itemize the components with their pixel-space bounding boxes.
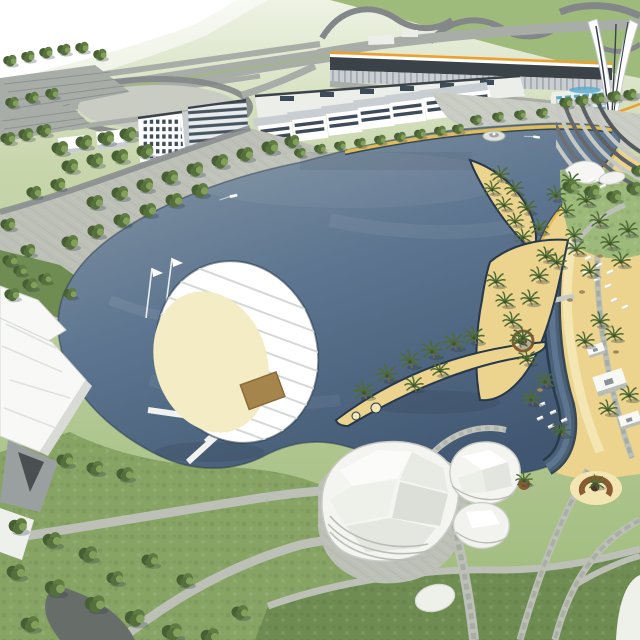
palm-tree	[518, 199, 538, 216]
palm-tree	[487, 272, 507, 289]
palm-tree	[522, 390, 542, 407]
tree	[562, 180, 580, 194]
palm-tree	[510, 332, 530, 349]
shaded-plaza	[45, 585, 135, 640]
palm-tree	[562, 172, 582, 189]
sail-island	[130, 240, 345, 464]
palm-tree	[566, 227, 584, 242]
beach-pavilion	[592, 368, 628, 397]
palm-tree	[377, 365, 399, 384]
tree	[45, 88, 61, 101]
crescent-south	[336, 342, 546, 426]
tree	[212, 154, 232, 170]
tree	[120, 127, 140, 143]
south-grass-strip	[255, 548, 640, 640]
tree	[284, 135, 302, 149]
palm-tree	[505, 180, 525, 197]
tree	[394, 132, 408, 143]
palm-tree	[530, 267, 550, 284]
shade-umbrellas	[537, 250, 619, 392]
palm-tree	[484, 181, 502, 196]
tree	[21, 51, 37, 64]
tree	[334, 141, 348, 152]
building-reflection	[300, 152, 472, 170]
palm-tree	[400, 351, 422, 370]
lawn-patch	[108, 213, 228, 268]
tree	[112, 149, 132, 165]
tree	[4, 288, 22, 302]
tree	[187, 162, 207, 178]
tree	[237, 147, 257, 163]
dome-plaza	[318, 450, 474, 640]
palm-tree	[513, 327, 535, 346]
palm-tree	[530, 219, 550, 236]
tree	[3, 55, 19, 68]
tree	[52, 141, 72, 157]
palm-tree	[431, 361, 451, 378]
tree	[514, 110, 528, 121]
tree	[192, 183, 212, 199]
palm-tree	[552, 422, 572, 439]
palm-tree	[591, 312, 611, 329]
tree	[591, 93, 607, 106]
palm-tree	[588, 475, 606, 490]
tree	[25, 92, 41, 105]
tree	[314, 144, 328, 155]
palm-tree	[515, 229, 533, 244]
village-houses	[253, 82, 492, 148]
palm-tree	[521, 290, 541, 307]
tree	[166, 193, 186, 209]
palm-tree	[590, 212, 610, 229]
tree	[137, 178, 157, 194]
tree	[414, 129, 428, 140]
tree	[87, 195, 107, 211]
highway	[0, 44, 330, 130]
pit-road	[330, 84, 612, 110]
dome-pavilion-medium	[450, 442, 520, 504]
blue-glass-building	[551, 87, 620, 116]
ring-feature	[570, 471, 622, 505]
beach-pavilions	[586, 342, 640, 430]
tree	[607, 91, 623, 104]
tree	[21, 616, 42, 634]
tree	[117, 467, 137, 483]
palm-tree	[464, 327, 486, 346]
palm-planter	[518, 478, 530, 490]
promenade	[0, 128, 330, 330]
masts	[146, 258, 183, 318]
crescent-north	[470, 160, 536, 252]
tree	[93, 49, 109, 62]
field-base	[0, 0, 640, 640]
tree	[232, 605, 252, 621]
boat	[524, 134, 540, 139]
palm-tree	[516, 472, 534, 487]
palm-tree	[619, 221, 639, 238]
tree	[76, 135, 96, 151]
tree	[623, 89, 639, 102]
palm-tree	[581, 262, 601, 279]
tree	[98, 131, 118, 147]
tree	[559, 97, 575, 110]
tree-clusters	[0, 42, 640, 640]
tree	[88, 224, 108, 240]
tree	[79, 546, 100, 564]
beach	[535, 150, 640, 479]
palm-tree	[405, 376, 425, 393]
tree	[38, 273, 54, 286]
tree	[18, 128, 36, 142]
tree	[13, 265, 29, 278]
tree	[75, 42, 91, 55]
tree	[575, 95, 591, 108]
palm-tree	[503, 312, 523, 329]
shade-canopies	[0, 286, 92, 560]
tree	[434, 126, 448, 137]
boat	[219, 194, 238, 201]
tree	[87, 461, 107, 477]
tree	[606, 190, 624, 204]
loungers	[537, 177, 629, 429]
tree	[22, 278, 40, 292]
palm-tree	[547, 186, 567, 203]
south-park	[0, 432, 380, 640]
sand-plaza	[518, 470, 640, 640]
racetrack	[322, 6, 640, 52]
rendering-canvas	[0, 0, 640, 640]
hotel-building	[138, 111, 192, 162]
oval-lot	[66, 66, 315, 135]
service-road	[318, 24, 640, 54]
channel-bridge	[546, 296, 574, 302]
fountain-island	[483, 131, 505, 141]
tree	[45, 579, 68, 598]
tree	[374, 135, 388, 146]
northeast-lawn	[560, 168, 640, 259]
corner-structure	[616, 575, 640, 640]
parking-lots	[0, 65, 130, 142]
tree	[0, 218, 18, 232]
palm-tree	[491, 166, 511, 183]
tree	[125, 609, 148, 628]
palm-tree	[576, 332, 596, 349]
tree	[43, 532, 64, 550]
palm-tree	[354, 382, 376, 401]
chevron-piers	[148, 366, 268, 462]
tree	[631, 165, 640, 178]
tree	[137, 144, 157, 160]
tree	[162, 623, 185, 640]
park-path	[0, 489, 380, 540]
observation-tower	[588, 19, 640, 118]
palm-tree	[548, 253, 568, 270]
grandstand-building	[330, 30, 612, 92]
sky-haze	[0, 0, 268, 100]
tree	[262, 140, 282, 156]
dome-pavilion-large	[322, 442, 458, 562]
beach-path	[597, 162, 632, 458]
tree	[626, 182, 640, 196]
palm-tree	[444, 333, 466, 352]
tree	[201, 628, 222, 640]
arc-bridge-deck	[430, 428, 506, 456]
tree	[142, 553, 162, 569]
tree	[50, 178, 68, 192]
palm-tree	[422, 341, 444, 360]
tree	[7, 564, 28, 582]
tree	[492, 112, 506, 123]
amphitheatre-steps	[534, 0, 640, 223]
tree	[36, 124, 54, 138]
lagoon-development-rendering	[0, 0, 640, 640]
lagoon	[58, 123, 620, 476]
tree	[470, 115, 484, 126]
tree	[9, 518, 30, 536]
low-buildings-in-trees	[58, 129, 130, 154]
palm-tree	[612, 252, 632, 269]
tree	[26, 186, 44, 200]
tree	[452, 124, 466, 135]
tree	[39, 47, 55, 60]
park-path	[120, 540, 375, 640]
beach-channel	[546, 252, 574, 467]
palm-tree	[620, 386, 640, 403]
palm-tree	[537, 247, 557, 264]
tree	[584, 185, 602, 199]
palm-tree	[558, 203, 576, 218]
palm-tree	[496, 197, 514, 212]
west-bank	[0, 250, 95, 318]
palm-tree	[577, 191, 597, 208]
tree	[85, 595, 108, 614]
tree	[294, 148, 308, 159]
crescent-middle	[476, 240, 568, 401]
crescent-planters	[352, 331, 533, 420]
palm-grove	[354, 166, 640, 490]
palm-tree	[599, 400, 619, 417]
north-plaza	[432, 92, 640, 150]
island-sand	[135, 276, 286, 448]
palm-tree	[507, 213, 525, 228]
palm-tree	[536, 372, 556, 389]
tree	[536, 108, 550, 119]
striped-hotel-building	[188, 100, 250, 158]
tree	[140, 203, 160, 219]
golden-shoreline	[345, 127, 612, 152]
beach-pavilion	[618, 410, 640, 430]
crescent-islands	[336, 160, 568, 426]
tree	[20, 244, 38, 258]
tree	[63, 288, 79, 301]
palm-tree	[496, 292, 516, 309]
sky	[0, 0, 238, 82]
tree	[107, 571, 127, 587]
orange-fascia-stripe	[330, 53, 612, 64]
tree	[5, 97, 21, 110]
palm-tree	[518, 350, 538, 367]
tree	[2, 254, 20, 268]
tree	[57, 44, 73, 57]
beach-walk	[567, 210, 600, 452]
tree	[354, 138, 368, 149]
retail-village	[253, 76, 525, 148]
dome-pavilion-small	[453, 503, 509, 549]
timber-deck	[240, 372, 285, 409]
palm-tree	[567, 240, 587, 257]
arc-bridge	[430, 428, 506, 456]
palm-tree	[605, 326, 625, 343]
tree	[114, 213, 134, 229]
tree	[0, 132, 18, 146]
tree	[177, 573, 197, 589]
lawn-patch	[48, 262, 130, 305]
shade-sculptures	[565, 161, 626, 186]
tree	[162, 170, 182, 186]
tree	[87, 153, 107, 169]
tree	[112, 186, 132, 202]
beach-pavilion	[586, 342, 605, 358]
tree	[57, 453, 77, 469]
small-canopy	[412, 580, 457, 615]
palm-tree	[601, 234, 621, 251]
tree	[62, 159, 82, 175]
racetrack-field	[330, 0, 640, 78]
tree	[62, 235, 82, 251]
